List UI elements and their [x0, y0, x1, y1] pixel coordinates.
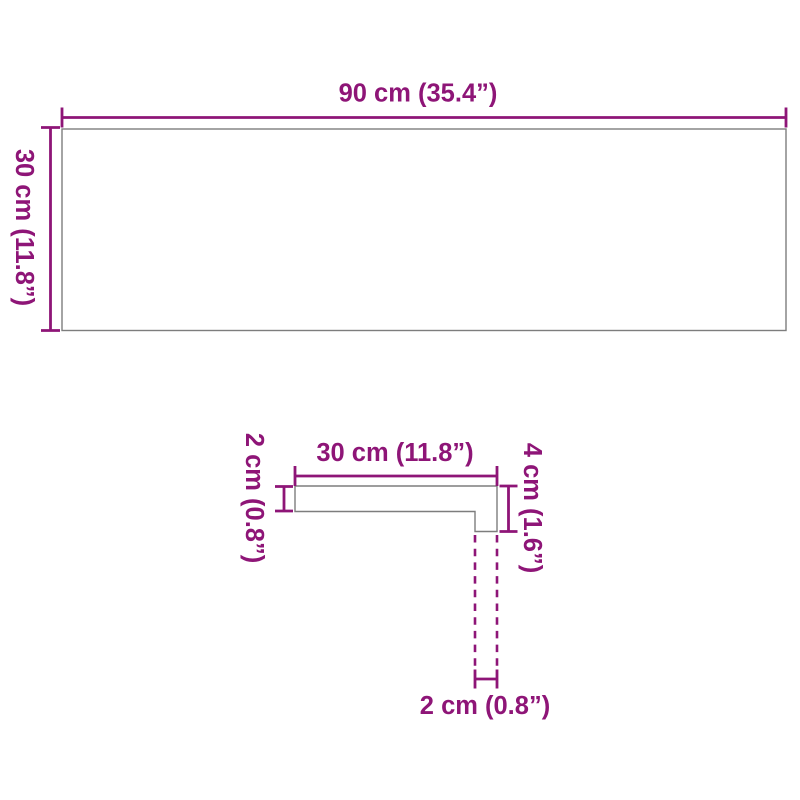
svg-text:2 cm (0.8”): 2 cm (0.8”)	[420, 692, 550, 720]
svg-text:30 cm (11.8”): 30 cm (11.8”)	[316, 439, 473, 467]
svg-text:2 cm (0.8”): 2 cm (0.8”)	[240, 433, 268, 563]
svg-text:4 cm (1.6”): 4 cm (1.6”)	[518, 443, 546, 573]
svg-text:30 cm (11.8”): 30 cm (11.8”)	[10, 149, 38, 306]
svg-text:90 cm (35.4”): 90 cm (35.4”)	[339, 80, 498, 108]
